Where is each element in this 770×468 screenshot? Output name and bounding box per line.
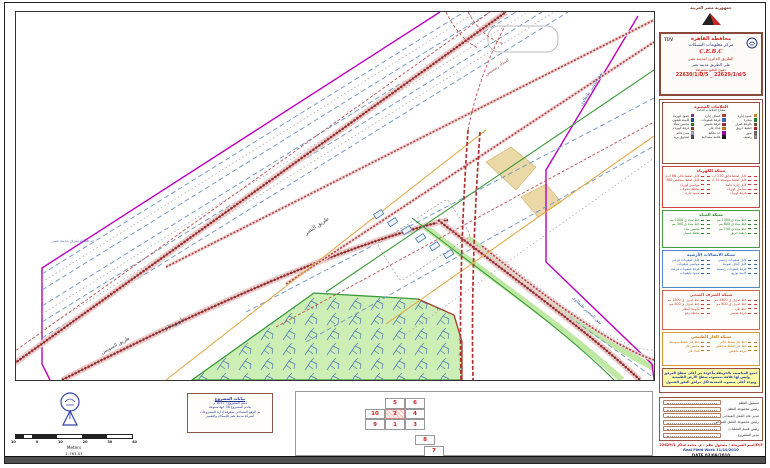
signature-line [663, 433, 721, 438]
structure [374, 210, 384, 219]
legend-title: شبكة الكهرباء [665, 168, 757, 173]
legend-line-sample [748, 176, 757, 177]
sheet-index-cell-5: 5 [385, 398, 405, 409]
utility-map: طريق النصرطريق عامنفق المشير طنطاوىنفق ا… [16, 12, 654, 380]
scale-ticks: 10010203040 [11, 440, 137, 444]
legend-line-sample [748, 233, 757, 234]
legend-line-sample [701, 224, 710, 225]
sheet-numbers: 22630/1/D/5 _ 22629/1/d/5 [662, 73, 760, 78]
scale-tick: 20 [83, 440, 88, 444]
map-frame: طريق النصرطريق عامنفق المشير طنطاوىنفق ا… [15, 11, 655, 381]
legend-item-label: عداد غاز [688, 349, 699, 353]
legend-item: عداد غاز [665, 349, 710, 353]
legend-line-sample [748, 304, 757, 305]
tuv-logo: TÜV [664, 37, 673, 42]
scale-segment [82, 435, 107, 438]
signature-row: رئيس مجموعة العمل الميدانى [663, 420, 759, 425]
signature-role-label: رئيس مجموعة النظم [723, 407, 759, 411]
legend-panel-4: شبكة الصرف الصحىخط صرف ق 1800 ممخط صرف ق… [662, 290, 760, 330]
project-line: لشركة مدينة نصر للإسكان والتعمير [189, 414, 271, 418]
signature-row: مسئول النظم [663, 400, 759, 405]
legend-line-sample [701, 300, 710, 301]
legend-line-sample [748, 268, 757, 269]
levels-note-box: جميع المناسيب بالخريطة مأخوذة من أعلى سط… [662, 368, 760, 387]
structure-outline [377, 199, 471, 282]
legend-item-label: نقطة غسيل [683, 231, 699, 235]
ramp-road-band-2 [482, 246, 654, 360]
legend-line-sample [701, 268, 710, 269]
legend-line-sample [701, 233, 710, 234]
legend-subtitle: مفتاح العلامات العامة [665, 109, 757, 113]
legend-panel-3: شبكة الاتصالات الأرضيةكابل تليفونات رئيس… [662, 250, 760, 288]
project-info-box: بيانات المشروع اسم المشروع : 1037 م يخدم… [187, 393, 273, 433]
legend-line-sample [748, 193, 757, 194]
scale-tick: 10 [58, 440, 63, 444]
legend-line-sample [701, 220, 710, 221]
legend-line-sample [701, 228, 710, 229]
legend-line-sample [701, 189, 710, 190]
authority-emblem-icon [746, 37, 758, 49]
legend-item: نقطة غسيل [665, 231, 710, 235]
sheet-index-cell-10: 10 [365, 409, 385, 420]
legend-title: شبكة الصرف الصحى [665, 292, 757, 297]
land-patch [521, 184, 561, 217]
scale-tick: 40 [132, 440, 137, 444]
legend-item: محطة رفع [665, 311, 710, 315]
signature-line [663, 400, 721, 405]
cebc-logo-box [45, 389, 95, 435]
contour-line [42, 12, 528, 314]
signature-row: رئيس مجموعة النظم [663, 407, 759, 412]
legend-title: شبكة المياه [665, 212, 757, 217]
central-cable [472, 132, 480, 380]
signature-row: مدير عام العمل الميدانى [663, 413, 759, 418]
title-line-2: على الطريق مدينة نصر [662, 62, 760, 67]
legend-line-sample [701, 273, 710, 274]
legend-line-sample [701, 346, 710, 347]
signature-role-label: رئيس مجموعة العمل الميدانى [723, 420, 759, 424]
map-label: حد قطاع شرق مدينة نصر [51, 238, 95, 243]
acronym: C.E.B.C [662, 49, 760, 55]
signature-role-label: مسئول النظم [723, 401, 759, 405]
signature-line [663, 420, 721, 425]
legend-title: شبكة الاتصالات الأرضية [665, 252, 757, 257]
country-header: جمهورية مصر العربية [657, 5, 765, 10]
legend-line-sample [748, 180, 757, 181]
legend-panel-5: شبكة الغاز الطبيعىخط غاز ضغط عالىخط غاز … [662, 332, 760, 366]
legend-line-sample [701, 342, 710, 343]
signature-line [663, 407, 721, 412]
legend-item: غرفة كهرباء [712, 191, 757, 195]
structure [402, 226, 412, 235]
legend-item-label: حنفية حريق [730, 231, 746, 235]
title-block: TÜV محافظة القاهرة مركز معلومات الشبكات … [659, 32, 763, 96]
scale-segment [24, 435, 32, 438]
signature-role-label: رئيس قسم العمليات [723, 427, 759, 431]
signature-table: مسئول النظمرئيس مجموعة النظممدير عام الع… [659, 397, 763, 441]
structure [388, 218, 398, 227]
legend-item-label: عمود تليفونات [680, 271, 700, 275]
legend-item-label: غرفة كهرباء [730, 191, 746, 195]
sheet-index: 56102491387 [295, 391, 653, 456]
legend-line-sample [701, 264, 710, 265]
legend-line-sample [701, 193, 710, 194]
cebc-logo-icon [55, 389, 85, 429]
legend-item-label: محطة رفع [685, 311, 699, 315]
legend-line-sample [748, 346, 757, 347]
legend-line-sample [701, 313, 710, 314]
legend-symbol [754, 135, 758, 139]
legend-item-label: عمود إنارة [685, 191, 699, 195]
sheet-index-cell-1: 1 [385, 419, 405, 430]
sheet-index-cell-4: 4 [405, 409, 425, 420]
scale-segment [16, 435, 24, 438]
land-patch [486, 147, 536, 190]
legend-item: كابينة توزيع [712, 271, 757, 275]
drawing-sheet: طريق النصرطريق عامنفق المشير طنطاوىنفق ا… [4, 2, 766, 464]
legend-item: صندوق بريد [665, 135, 694, 139]
legend-item: عمود تليفونات [665, 271, 710, 275]
water-line [42, 12, 490, 290]
water-line [246, 98, 654, 312]
signature-role-label: مدير عام العمل الميدانى [723, 414, 759, 418]
scale-unit: Meters [15, 445, 133, 450]
scale-segment [57, 435, 82, 438]
legend-item-label: غرفة تخفيض [729, 349, 747, 353]
legend-item-label: صندوق بريد [673, 135, 689, 139]
note-line: ويوجد أعلى منسوب للمعدية لكل مرافق النفق… [664, 380, 758, 385]
egypt-flag-icon [700, 11, 722, 26]
legend-symbol [691, 135, 695, 139]
legend-item-label: كابينة توزيع [731, 271, 746, 275]
signature-row: رئيس قسم العمليات [663, 426, 759, 431]
legend-line-sample [701, 176, 710, 177]
sheet-index-cell-9: 9 [365, 419, 385, 430]
legend-symbol [722, 135, 726, 139]
legend-line-sample [748, 350, 757, 351]
signature-row: مدير المشروع [663, 433, 759, 438]
sheet-index-cell-2: 2 [385, 409, 405, 420]
central-cable-branch [468, 28, 504, 130]
scale-tick: 10 [11, 440, 16, 444]
legend-item: غرفة تفتيش [712, 311, 757, 315]
legend-line-sample [748, 184, 757, 185]
legend-panel-2: شبكة المياهخط مياه ق 1500 ممخط مياه ق 10… [662, 210, 760, 248]
legend-line-sample [701, 308, 710, 309]
green-area-trees [192, 293, 462, 380]
legend-line-sample [701, 184, 710, 185]
legend-line-sample [748, 260, 757, 261]
legend-line-sample [748, 313, 757, 314]
contour-line [42, 12, 476, 282]
legend-panel-0: العلامات المميزةمفتاح العلامات العامةعمو… [662, 102, 760, 164]
legend-title: شبكة الغاز الطبيعى [665, 334, 757, 339]
bottom-band [5, 456, 765, 463]
right-panel: جمهورية مصر العربية TÜV محافظة القاهرة م… [657, 5, 765, 461]
signature-line [663, 426, 721, 431]
title-line-3: حقوق الطبع محفوظة [662, 68, 760, 72]
title-line-1: الطريق الدائرى لمدينة نصر [662, 56, 760, 61]
legend-line-sample [701, 260, 710, 261]
legend-item-label: رصيف [743, 135, 752, 139]
legend-item: حنفية حريق [712, 231, 757, 235]
legend-item: عمود إنارة [665, 191, 710, 195]
structure [416, 234, 426, 243]
legend-line-sample [748, 300, 757, 301]
legend-item-label: علامة مساحية [702, 135, 721, 139]
scale-bar [15, 434, 133, 439]
sheet-index-cell-3: 3 [405, 419, 425, 430]
scale-tick: 0 [36, 440, 38, 444]
sheet-boundary-right [546, 16, 654, 380]
legend-line-sample [701, 304, 710, 305]
legend-line-sample [748, 342, 757, 343]
legend-line-sample [748, 308, 757, 309]
legend-line-sample [748, 264, 757, 265]
legend-item-label: غرفة تفتيش [730, 311, 747, 315]
legend-line-sample [701, 350, 710, 351]
legend-panel-1: شبكة الكهرباءكابل ضغط فائق 220 ك.فكابل ض… [662, 166, 760, 208]
legend-line-sample [701, 180, 710, 181]
scale-tick: 30 [107, 440, 112, 444]
legend-line-sample [748, 224, 757, 225]
sheet-index-cell-6: 6 [405, 398, 425, 409]
legend-item: رصيف [728, 135, 757, 139]
legend-line-sample [748, 189, 757, 190]
legend-item: غرفة تخفيض [712, 349, 757, 353]
scale-segment [107, 435, 132, 438]
note-line: وليس لها علاقة بمنسوب سطح الأرض الطبيعية [664, 375, 758, 380]
map-label: طريق النصر [303, 216, 330, 237]
legend-column: العلامات المميزةمفتاح العلامات العامةعمو… [659, 99, 763, 393]
legend-line-sample [748, 273, 757, 274]
legend-line-sample [748, 228, 757, 229]
legend-line-sample [748, 220, 757, 221]
signature-role-label: مدير المشروع [723, 433, 759, 437]
scale-segment [32, 435, 57, 438]
legend-item: علامة مساحية [696, 135, 725, 139]
signature-line [663, 413, 721, 418]
structure [444, 250, 454, 259]
legend-stack: العلامات المميزةمفتاح العلامات العامةعمو… [662, 102, 760, 366]
sheet-index-cell-8: 8 [415, 435, 435, 446]
